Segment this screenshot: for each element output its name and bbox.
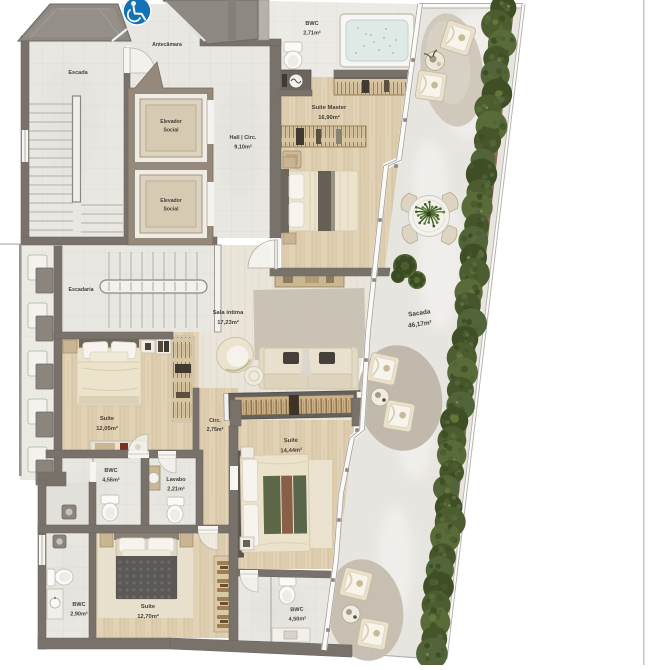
svg-text:Suite: Suite <box>100 416 115 422</box>
svg-text:Social: Social <box>163 128 179 134</box>
svg-text:Suite Master: Suite Master <box>312 105 347 111</box>
svg-text:16,90m²: 16,90m² <box>318 114 340 121</box>
svg-text:Antecâmara: Antecâmara <box>152 42 182 48</box>
svg-text:12,05m²: 12,05m² <box>96 425 118 432</box>
svg-text:Social: Social <box>163 207 179 213</box>
svg-text:BWC: BWC <box>104 468 117 474</box>
svg-text:2,21m²: 2,21m² <box>167 486 185 493</box>
svg-text:14,44m²: 14,44m² <box>280 447 302 455</box>
svg-text:Circ.: Circ. <box>209 418 221 424</box>
svg-text:Lavabo: Lavabo <box>166 477 186 483</box>
svg-text:Hall | Circ.: Hall | Circ. <box>230 135 257 141</box>
svg-text:9,10m²: 9,10m² <box>234 144 252 151</box>
svg-text:2,71m²: 2,71m² <box>303 30 321 37</box>
svg-text:2,90m²: 2,90m² <box>70 611 88 618</box>
svg-text:Suite: Suite <box>141 604 156 610</box>
svg-text:4,56m²: 4,56m² <box>102 477 120 484</box>
svg-text:Escadaria: Escadaria <box>68 287 93 293</box>
svg-text:BWC: BWC <box>305 21 318 27</box>
svg-text:BWC: BWC <box>72 602 85 608</box>
svg-text:2,75m²: 2,75m² <box>207 427 224 433</box>
svg-text:12,70m²: 12,70m² <box>137 613 159 620</box>
svg-text:Escada: Escada <box>68 70 88 76</box>
svg-text:BWC: BWC <box>290 607 303 613</box>
svg-text:Suite: Suite <box>284 438 299 445</box>
svg-text:4,50m²: 4,50m² <box>288 615 306 623</box>
svg-text:Elevador: Elevador <box>160 198 182 204</box>
svg-text:Elevador: Elevador <box>160 119 182 125</box>
svg-text:Sala íntima: Sala íntima <box>213 310 244 316</box>
svg-text:17,23m²: 17,23m² <box>217 319 239 326</box>
